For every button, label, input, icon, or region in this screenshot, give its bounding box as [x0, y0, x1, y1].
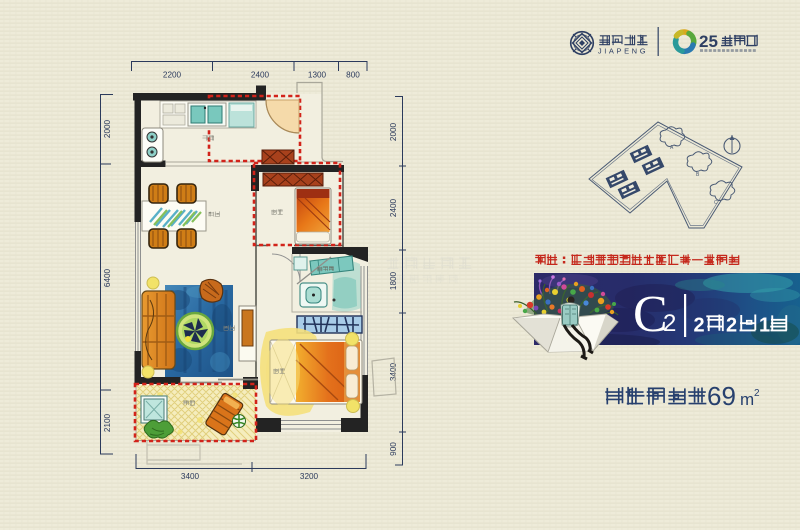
svg-text:2400: 2400: [251, 71, 270, 80]
svg-text:2: 2: [726, 315, 737, 337]
svg-text:2: 2: [754, 388, 760, 399]
svg-text:m: m: [740, 390, 754, 409]
svg-text:C: C: [714, 200, 718, 206]
svg-text:1: 1: [759, 315, 770, 337]
svg-text:2000: 2000: [389, 122, 398, 141]
svg-text:1300: 1300: [308, 71, 327, 80]
svg-text:1800: 1800: [389, 271, 398, 290]
svg-text:2400: 2400: [389, 198, 398, 217]
svg-text:800: 800: [346, 71, 360, 80]
svg-text:3400: 3400: [181, 472, 200, 481]
svg-text:2: 2: [694, 315, 705, 337]
svg-text:2200: 2200: [163, 71, 182, 80]
svg-text:JIAPENG: JIAPENG: [598, 47, 648, 56]
svg-text:2: 2: [663, 310, 676, 337]
svg-text:3200: 3200: [300, 472, 319, 481]
svg-text:2000: 2000: [103, 119, 112, 138]
svg-text:2100: 2100: [103, 413, 112, 432]
svg-text:900: 900: [389, 442, 398, 456]
svg-text:69: 69: [707, 381, 736, 411]
svg-text:25: 25: [699, 32, 718, 51]
svg-text:3400: 3400: [389, 362, 398, 381]
svg-text:6400: 6400: [103, 268, 112, 287]
